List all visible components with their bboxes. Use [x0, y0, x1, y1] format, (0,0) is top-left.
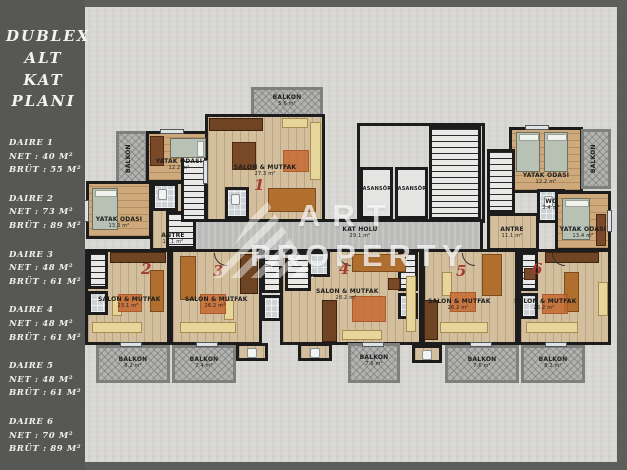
kitchen-counter	[322, 300, 337, 342]
window	[196, 342, 218, 347]
daire-name: DAIRE 6	[9, 416, 85, 430]
sofa	[440, 322, 488, 333]
sofa	[406, 276, 416, 332]
window	[160, 129, 184, 134]
apartment-number-4: 4	[339, 260, 349, 278]
elevator-1	[360, 167, 393, 219]
washer-icon	[310, 348, 320, 358]
kitchen-counter	[240, 254, 258, 294]
stair-top-right	[487, 149, 515, 213]
bath-apt3	[262, 295, 282, 321]
room-label-salon: SALON & MUTFAK26.2 m²	[428, 298, 488, 311]
daire-4-entry: DAIRE 4 NET : 48 M² BRÜT : 61 M²	[9, 304, 85, 345]
daire-2-entry: DAIRE 2 NET : 73 M² BRÜT : 89 M²	[9, 193, 85, 234]
daire-brut: BRÜT : 89 M²	[9, 220, 85, 234]
room-label-antre: ANTRE11.1 m²	[148, 232, 198, 245]
room-label-salon: SALON & MUTFAK28.2 m²	[316, 288, 376, 301]
pillow	[547, 134, 567, 141]
title-line: ALT KAT	[6, 48, 81, 92]
toilet-icon	[158, 189, 167, 200]
sofa	[342, 330, 382, 340]
room-label-kat-holu: KAT HOLÜ29.1 m²	[330, 226, 390, 239]
daire-brut: BRÜT : 89 M²	[9, 443, 85, 457]
title-line: PLANI	[6, 91, 81, 113]
daire-name: DAIRE 4	[9, 304, 85, 318]
apartment-number-1: 1	[254, 176, 264, 194]
daire-net: NET : 48 M²	[9, 318, 85, 332]
daire-name: DAIRE 2	[9, 193, 85, 207]
sofa	[282, 118, 308, 128]
room-label-balkon: BALKON7.4 m²	[174, 356, 234, 369]
daire-6-entry: DAIRE 6 NET : 70 M² BRÜT : 89 M²	[9, 416, 85, 457]
bed	[170, 138, 206, 158]
room-label-balkon: BALKON8.2 m²	[523, 356, 583, 369]
room-label-asansor: ASANSÖR	[396, 186, 428, 192]
pillow	[95, 190, 117, 197]
elevator-2	[395, 167, 428, 219]
room-label-yatak: YATAK ODASI13.3 m²	[88, 216, 150, 229]
daire-brut: BRÜT : 55 M²	[9, 164, 85, 178]
sofa	[92, 322, 142, 333]
daire-net: NET : 48 M²	[9, 374, 85, 388]
sofa	[526, 322, 578, 333]
apartment-number-2: 2	[141, 260, 151, 278]
daire-net: NET : 48 M²	[9, 262, 85, 276]
dining-table	[268, 188, 316, 212]
daire-net: NET : 70 M²	[9, 430, 85, 444]
room-label-yatak: YATAK ODASI12.2 m²	[515, 172, 577, 185]
dining-table	[482, 254, 502, 296]
daire-name: DAIRE 5	[9, 360, 85, 374]
sofa	[598, 282, 608, 316]
sofa	[310, 122, 321, 180]
daire-5-entry: DAIRE 5 NET : 48 M² BRÜT : 61 M²	[9, 360, 85, 401]
washer-icon	[247, 348, 257, 358]
daire-net: NET : 73 M²	[9, 206, 85, 220]
window	[525, 125, 549, 130]
sidebar: DUBLEX ALT KAT PLANI DAIRE 1 NET : 40 M²…	[0, 0, 85, 470]
utility-pod	[298, 343, 332, 361]
room-label-salon: SALON & MUTFAK25.2 m²	[514, 298, 574, 311]
room-label-yatak: YATAK ODASI13.4 m²	[558, 226, 608, 239]
room-label-salon: SALON & MUTFAK23.1 m²	[98, 296, 158, 309]
kitchen-counter	[110, 252, 166, 263]
window	[120, 342, 142, 347]
pillow	[565, 200, 589, 207]
window	[470, 342, 492, 347]
daire-brut: BRÜT : 61 M²	[9, 276, 85, 290]
room-label-balkon: BALKON7.6 m²	[448, 356, 516, 369]
window	[545, 342, 567, 347]
kitchen-counter	[209, 118, 263, 131]
room-label-antre: ANTRE11.1 m²	[489, 226, 535, 239]
bed	[544, 132, 568, 172]
room-label-yatak: YATAK ODASI12.2 m²	[148, 158, 210, 171]
wc-apt1	[225, 187, 249, 219]
title-line: DUBLEX	[6, 26, 81, 48]
core-staircase	[429, 126, 481, 220]
dining-table	[352, 254, 406, 272]
bath-top-left	[152, 183, 178, 211]
bath-apt4	[308, 251, 330, 277]
washer-icon	[422, 350, 432, 360]
room-label-balkon: BALKON8.2 m²	[100, 356, 166, 369]
floorplan-image: DUBLEX ALT KAT PLANI DAIRE 1 NET : 40 M²…	[0, 0, 627, 470]
dining-table	[180, 256, 196, 300]
room-label-wc: WC3.4 m²	[539, 198, 563, 211]
bed	[516, 132, 540, 172]
room-label-balkon: BALKON	[590, 142, 597, 176]
room-label-asansor: ASANSÖR	[361, 186, 393, 192]
pillow	[519, 134, 539, 141]
daire-3-entry: DAIRE 3 NET : 48 M² BRÜT : 61 M²	[9, 249, 85, 290]
frame-bottom	[0, 462, 627, 470]
pillow	[197, 141, 204, 157]
daire-brut: BRÜT : 61 M²	[9, 332, 85, 346]
room-label-balkon: BALKON7.6 m²	[350, 354, 398, 367]
daire-1-entry: DAIRE 1 NET : 40 M² BRÜT : 55 M²	[9, 137, 85, 178]
daire-brut: BRÜT : 61 M²	[9, 387, 85, 401]
room-label-salon: SALON & MUTFAK26.2 m²	[185, 296, 245, 309]
apartment-number-5: 5	[456, 262, 466, 280]
apartment-number-6: 6	[532, 260, 542, 278]
frame-top	[0, 0, 627, 7]
utility-pod	[412, 345, 442, 363]
daire-name: DAIRE 1	[9, 137, 85, 151]
apartment-number-3: 3	[213, 262, 223, 280]
window	[362, 342, 384, 347]
sofa	[180, 322, 236, 333]
toilet-icon	[231, 194, 240, 205]
utility-pod	[236, 343, 268, 361]
side-table	[388, 278, 400, 290]
daire-net: NET : 40 M²	[9, 151, 85, 165]
room-label-balkon: BALKON	[125, 142, 132, 176]
stair-apt2	[88, 251, 108, 289]
page-title: DUBLEX ALT KAT PLANI	[6, 26, 81, 113]
frame-right	[617, 0, 627, 470]
room-label-balkon: BALKON5.6 m²	[253, 94, 321, 107]
room-label-salon: SALON & MUTFAK27.3 m²	[225, 164, 305, 177]
daire-name: DAIRE 3	[9, 249, 85, 263]
